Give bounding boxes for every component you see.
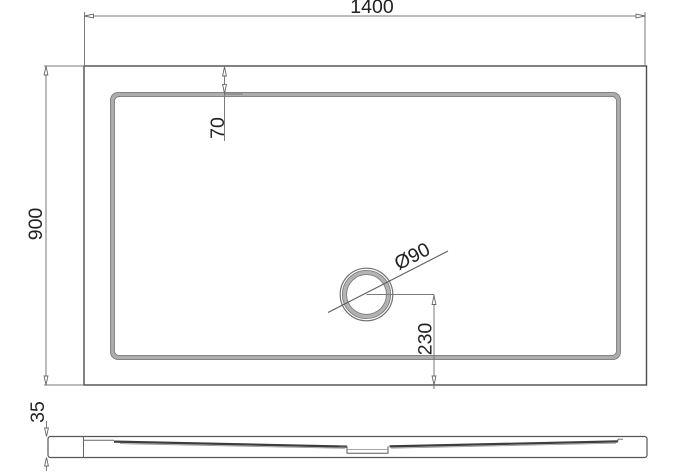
dim-width (85, 12, 646, 66)
arrow-left-icon (85, 14, 94, 18)
arrow-up-icon (44, 66, 48, 75)
arrow-down-icon (432, 376, 436, 385)
arrow-down-icon (45, 428, 49, 437)
technical-drawing-canvas: 1400 900 70 Ø90 230 (0, 0, 675, 476)
dim-depth (44, 66, 84, 385)
dim-rim-offset-label: 70 (207, 117, 229, 139)
arrow-down-icon (44, 376, 48, 385)
arrow-right-icon (636, 14, 645, 18)
side-drain-recess (340, 446, 389, 453)
dim-drain-offset-label: 230 (415, 323, 437, 356)
shower-tray-drawing: 1400 900 70 Ø90 230 (0, 0, 675, 476)
arrow-up-icon (432, 296, 436, 305)
plan-outer-rect (84, 66, 647, 385)
side-view (48, 437, 647, 458)
plan-view (84, 66, 647, 385)
arrow-up-icon (223, 67, 227, 76)
dim-depth-label: 900 (25, 208, 47, 241)
dim-height-label: 35 (27, 401, 49, 423)
plan-inner-rim (111, 93, 621, 360)
dim-width-label: 1400 (350, 0, 394, 18)
arrow-up-icon (45, 458, 49, 467)
side-floor-slope (114, 441, 618, 448)
